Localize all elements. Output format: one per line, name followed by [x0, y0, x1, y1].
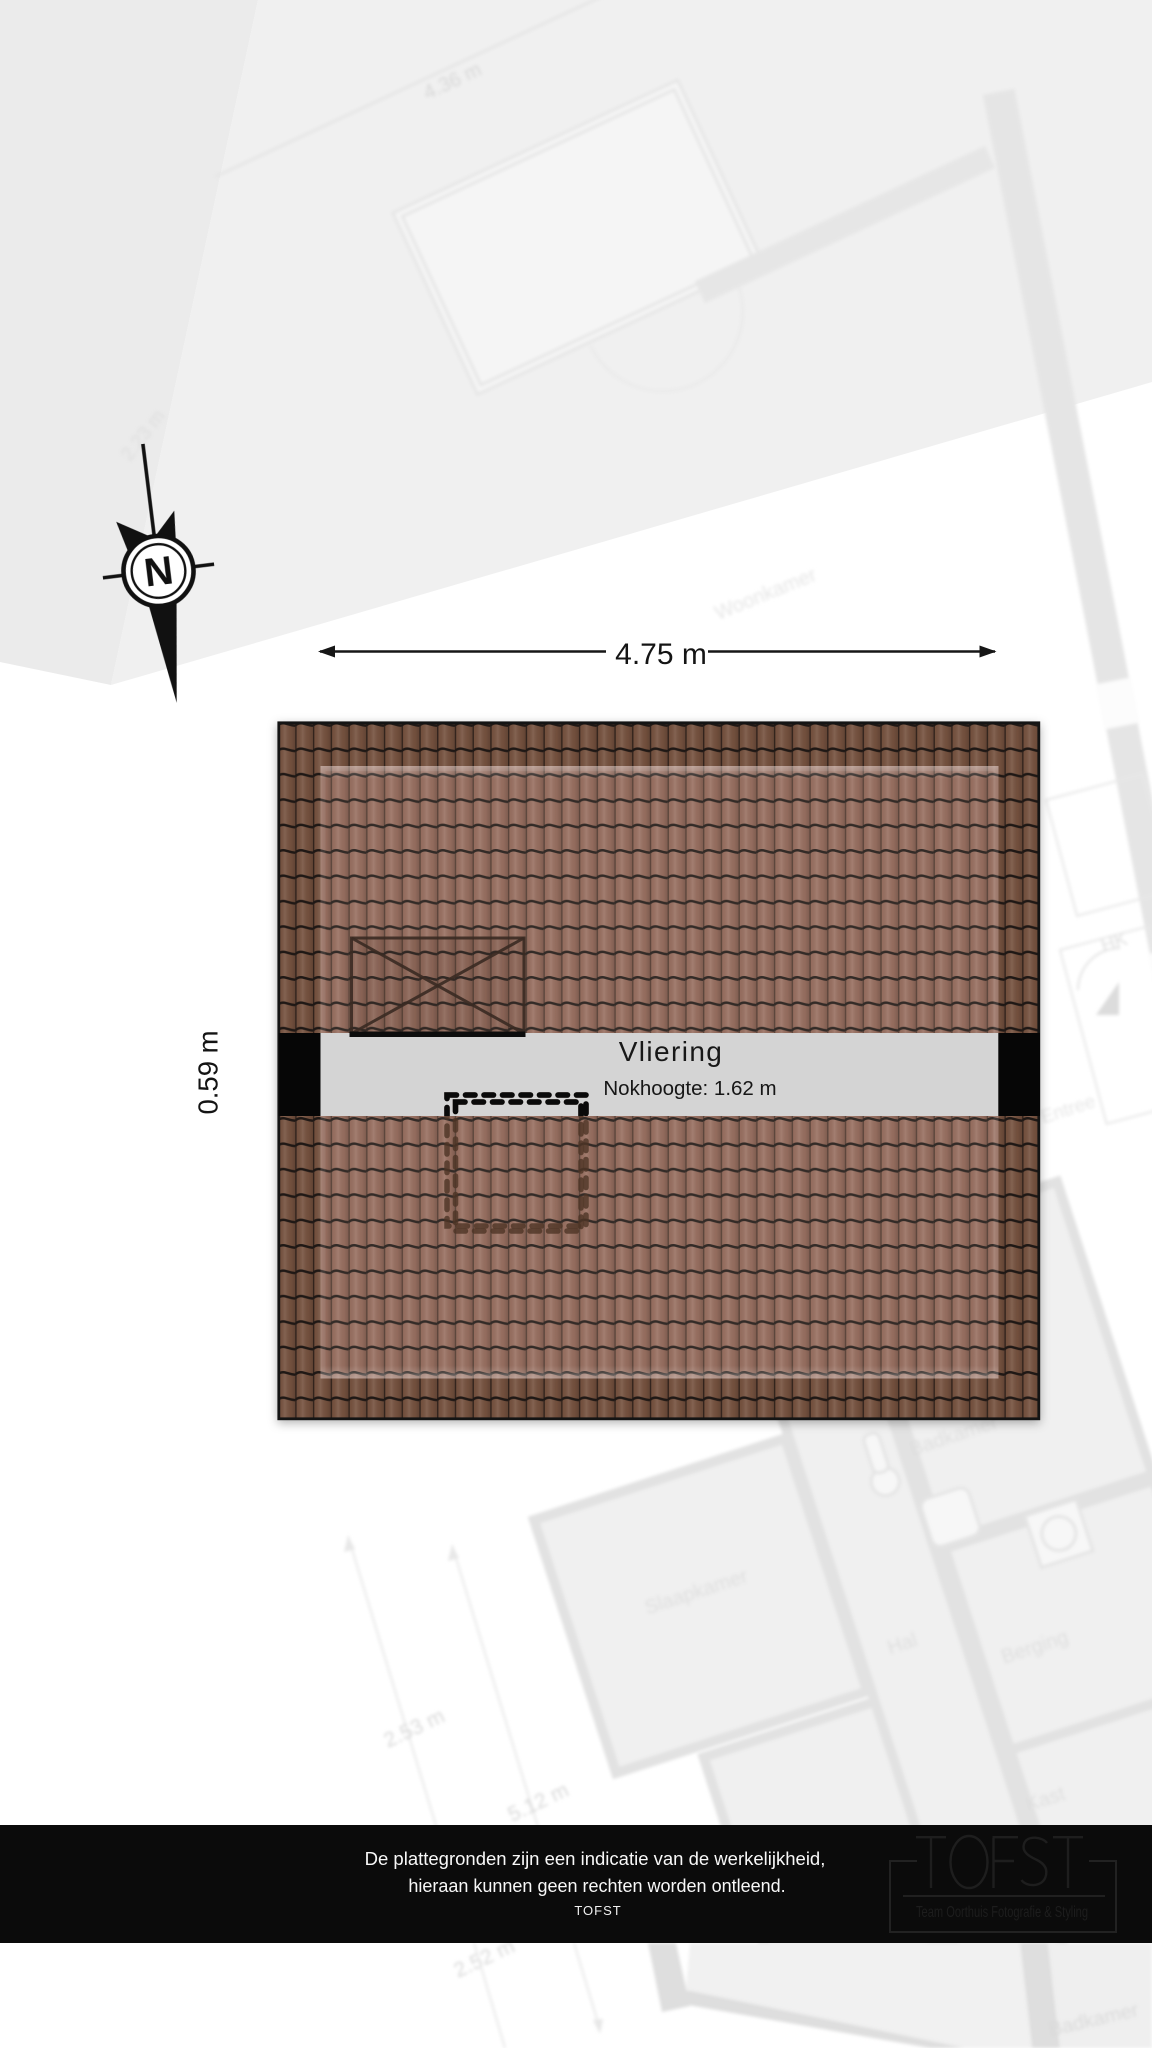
svg-text:TOFST: TOFST	[574, 1903, 621, 1918]
svg-text:Vliering: Vliering	[619, 1036, 724, 1067]
svg-text:Nokhoogte: 1.62 m: Nokhoogte: 1.62 m	[603, 1077, 776, 1100]
svg-text:0.59 m: 0.59 m	[193, 1030, 224, 1114]
svg-text:N: N	[142, 548, 176, 595]
svg-text:Team Oorthuis Fotografie & Sty: Team Oorthuis Fotografie & Styling	[916, 1904, 1088, 1921]
svg-text:4.75 m: 4.75 m	[615, 638, 707, 671]
svg-text:De plattegronden zijn een indi: De plattegronden zijn een indicatie van …	[365, 1848, 826, 1869]
svg-text:hieraan kunnen geen rechten wo: hieraan kunnen geen rechten worden ontle…	[408, 1876, 785, 1896]
